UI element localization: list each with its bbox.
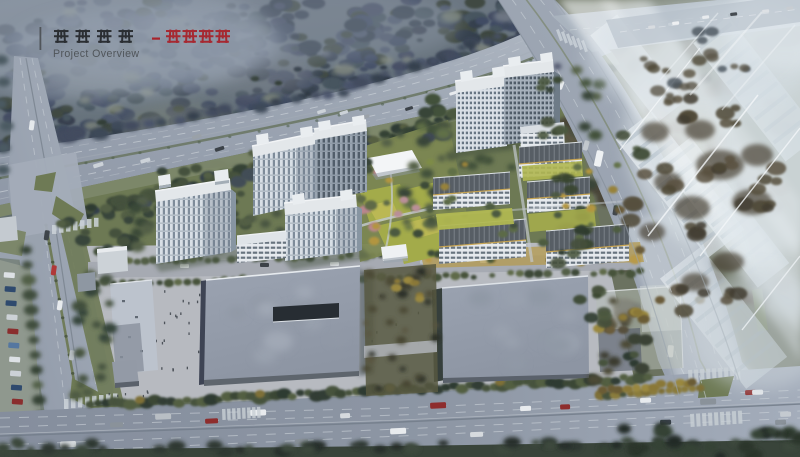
svg-text:Project Overview: Project Overview [53, 48, 139, 60]
